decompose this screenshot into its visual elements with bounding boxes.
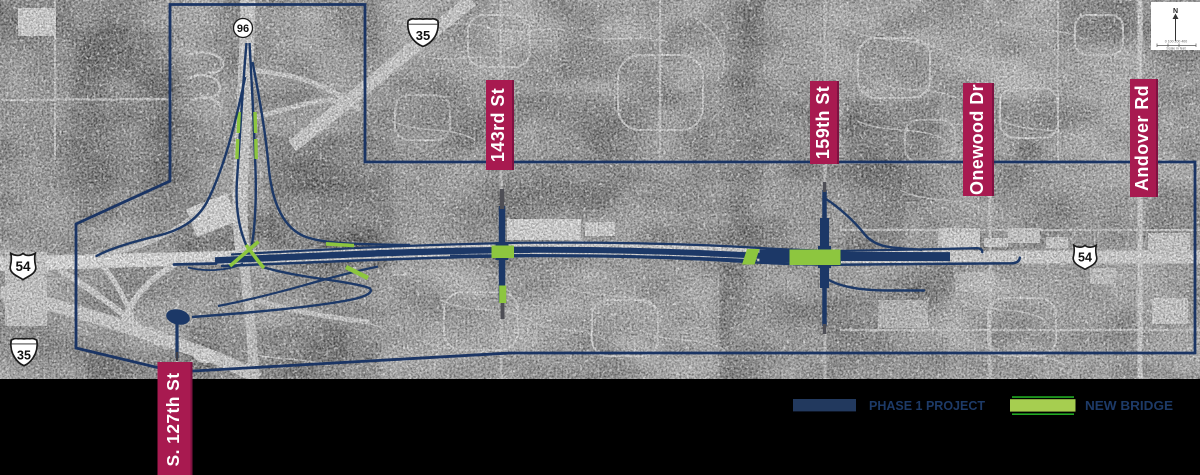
- svg-text:S. 127th St: S. 127th St: [163, 373, 183, 467]
- svg-text:54: 54: [15, 259, 31, 274]
- svg-text:96: 96: [237, 23, 249, 35]
- svg-text:NEW BRIDGE: NEW BRIDGE: [1085, 398, 1173, 413]
- svg-text:Scale in feet: Scale in feet: [1166, 47, 1185, 51]
- svg-text:0 100 200 400: 0 100 200 400: [1165, 40, 1187, 44]
- svg-text:35: 35: [416, 28, 430, 43]
- svg-text:143rd St: 143rd St: [488, 88, 508, 162]
- svg-text:Andover Rd: Andover Rd: [1132, 85, 1152, 191]
- svg-text:PHASE 1 PROJECT: PHASE 1 PROJECT: [869, 398, 985, 413]
- svg-text:54: 54: [1078, 251, 1092, 265]
- svg-text:Onewood Dr: Onewood Dr: [967, 84, 987, 195]
- svg-text:159th St: 159th St: [813, 86, 833, 159]
- svg-text:35: 35: [17, 349, 31, 363]
